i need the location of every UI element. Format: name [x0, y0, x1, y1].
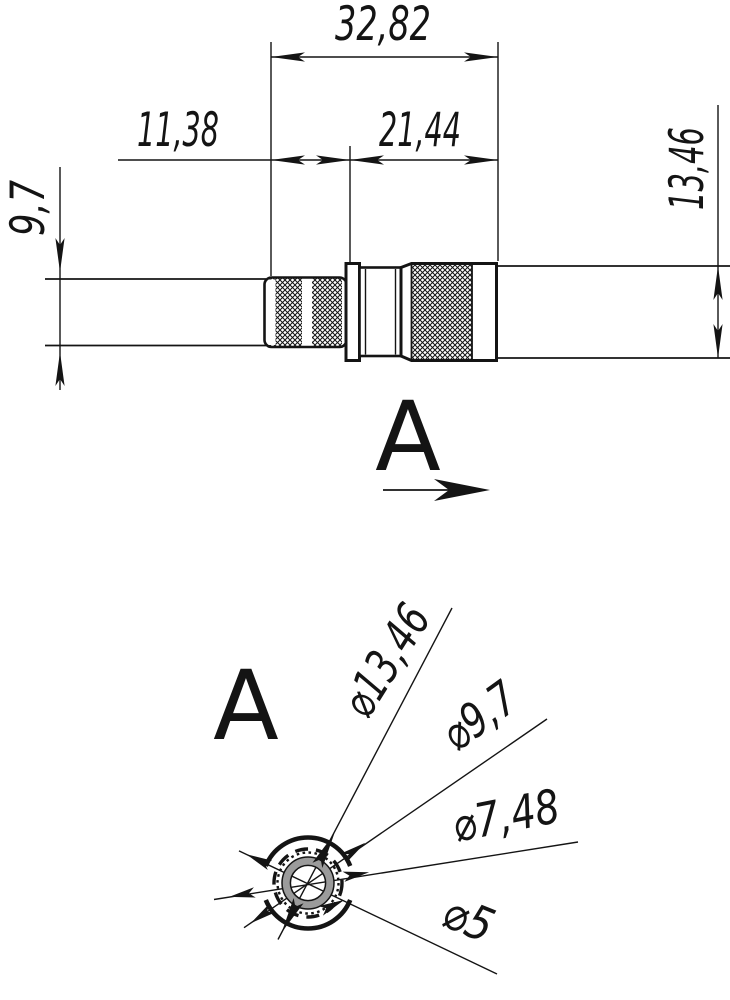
flange-ring: [346, 264, 360, 361]
extension-lines: [271, 42, 498, 276]
technical-drawing-canvas: 32,82 11,38 21,44 9,7 13,46 A A: [0, 0, 730, 1000]
dim-total-length: 32,82: [335, 0, 431, 52]
rear-knurl-body: [401, 264, 497, 361]
view-direction-marker: A: [375, 381, 490, 501]
dim-cable-diameter: 9,7: [1, 180, 56, 236]
dim-knurl-diameter: ⌀9,7: [431, 671, 528, 763]
cable-outline: [45, 279, 266, 346]
drawing-sheet: 32,82 11,38 21,44 9,7 13,46 A A: [0, 0, 730, 1000]
body-outline-right: [498, 266, 730, 358]
front-knurl-section: [265, 278, 347, 348]
dim-body-diameter: 13,46: [660, 127, 715, 210]
dim-bore-diameter: ⌀5: [435, 885, 502, 955]
dim-rear-length: 21,44: [379, 103, 461, 158]
diameter-arrows: [228, 831, 370, 935]
end-view-label: A: [213, 650, 279, 762]
dim-front-length: 11,38: [137, 103, 219, 158]
dim-outer-diameter: ⌀13,46: [331, 594, 442, 727]
dim-ring-diameter: ⌀7,48: [448, 779, 565, 854]
side-view: 32,82 11,38 21,44 9,7 13,46: [1, 0, 730, 390]
end-view: A: [213, 594, 578, 974]
view-arrow-label: A: [375, 381, 441, 493]
middle-cylinder: [360, 268, 402, 357]
